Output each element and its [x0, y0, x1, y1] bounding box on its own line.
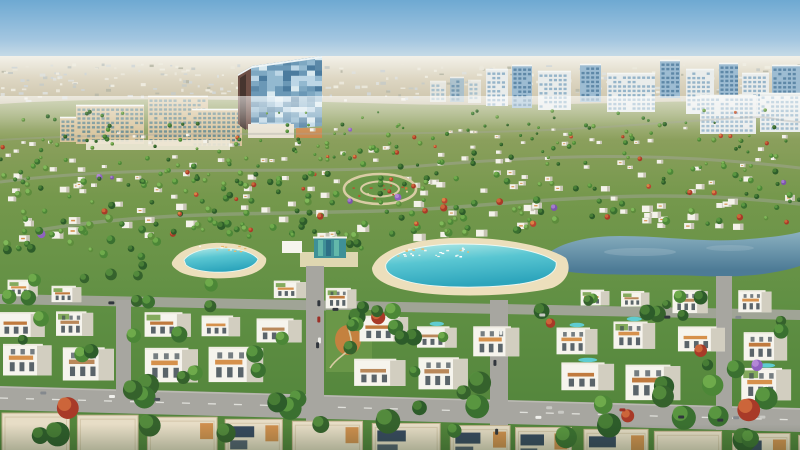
tower-window — [735, 75, 738, 77]
tree-highlight — [164, 170, 166, 172]
villa-shade — [454, 211, 457, 216]
speck — [51, 77, 54, 79]
tower-window — [559, 75, 562, 77]
tower-window — [564, 88, 567, 90]
tree-highlight — [776, 182, 778, 184]
tree-highlight — [573, 186, 577, 190]
tree-highlight — [513, 227, 517, 231]
speck — [386, 77, 388, 80]
speck — [4, 72, 8, 74]
awning — [360, 369, 386, 373]
tower-window — [549, 79, 552, 81]
tree-highlight — [527, 218, 530, 221]
speck — [121, 73, 125, 75]
tree-highlight — [141, 179, 144, 182]
window — [435, 376, 440, 385]
window — [69, 316, 72, 320]
glass-panel — [267, 71, 275, 77]
villa-shade — [143, 208, 146, 213]
window — [625, 300, 628, 304]
speck — [441, 66, 443, 69]
speck — [68, 80, 74, 82]
car — [539, 313, 545, 316]
tree-highlight — [86, 221, 91, 226]
tree-highlight — [333, 156, 335, 158]
tower-window — [763, 90, 766, 92]
tower-window — [502, 73, 505, 75]
villa-shade — [26, 235, 29, 241]
tower-window — [596, 68, 599, 70]
awning — [278, 288, 294, 290]
speck — [412, 249, 415, 251]
tower-window — [758, 77, 761, 79]
villa-shade — [759, 158, 761, 161]
tree-highlight — [673, 406, 688, 421]
speck — [632, 67, 637, 69]
villa-shade — [129, 222, 132, 228]
speck — [401, 187, 404, 188]
tree-highlight — [703, 375, 716, 388]
villa-shade — [643, 323, 655, 349]
tree-highlight — [176, 163, 179, 166]
villa-shade — [638, 141, 640, 144]
tower-window — [514, 77, 517, 79]
speck — [43, 92, 48, 94]
speck — [179, 78, 181, 81]
tower-window — [633, 81, 636, 83]
villa-shade — [189, 134, 190, 136]
glass-panel — [283, 71, 291, 77]
speck — [362, 86, 368, 89]
tower-window — [633, 85, 636, 87]
window — [222, 328, 226, 334]
tree-highlight — [414, 221, 417, 224]
villa-accent — [156, 189, 159, 190]
tree-highlight — [267, 179, 271, 183]
tree-highlight — [399, 215, 403, 219]
tree-highlight — [224, 220, 229, 225]
villa-accent — [635, 142, 637, 143]
speck — [171, 92, 176, 95]
tree-highlight — [764, 216, 767, 219]
tower-window — [492, 73, 495, 75]
tree-highlight — [471, 200, 475, 204]
speck — [160, 69, 165, 71]
tower-window — [730, 89, 733, 91]
lake-reflection — [706, 245, 754, 251]
villa-shade — [105, 165, 107, 168]
tower-window — [676, 72, 679, 74]
awning — [329, 296, 344, 299]
speck — [397, 255, 399, 256]
speck — [68, 66, 72, 68]
roof-garden — [276, 283, 286, 287]
tower-window — [788, 69, 791, 71]
speck — [353, 187, 355, 188]
window — [685, 341, 690, 348]
tower-window — [688, 81, 691, 83]
tree-highlight — [179, 138, 181, 140]
tree-highlight — [118, 161, 120, 163]
villa-roofline — [145, 312, 183, 314]
tree-highlight — [667, 169, 671, 173]
awning — [150, 322, 173, 325]
tree-highlight — [221, 186, 224, 189]
window — [80, 367, 85, 377]
tower-window — [470, 92, 473, 94]
tree-highlight — [372, 305, 379, 312]
tower-roofline — [607, 73, 655, 75]
tower-window — [666, 86, 669, 88]
villa-shade — [661, 160, 663, 164]
tree-highlight — [68, 195, 70, 197]
tree-highlight — [462, 230, 466, 234]
tower-window — [662, 64, 665, 66]
villa-roofline — [418, 357, 458, 359]
villa-roofline — [738, 290, 765, 292]
window — [207, 328, 211, 334]
window — [291, 291, 294, 296]
speck — [190, 93, 194, 95]
speck — [326, 87, 332, 89]
bottom-shadow — [0, 424, 800, 450]
pool — [578, 358, 597, 362]
villa-accent — [546, 178, 549, 179]
tree-highlight — [42, 138, 44, 140]
villa-shade — [442, 153, 444, 157]
tower-window — [652, 90, 655, 92]
tree-highlight — [178, 212, 181, 215]
car — [316, 342, 319, 348]
speck — [384, 189, 386, 190]
car — [735, 316, 741, 319]
speck — [43, 76, 47, 79]
tower-window — [528, 91, 531, 93]
window — [330, 300, 333, 306]
tree-highlight — [716, 218, 720, 222]
villa-shade — [66, 187, 69, 193]
tower-window — [523, 77, 526, 79]
tree-highlight — [757, 186, 760, 189]
speck — [402, 63, 404, 65]
villa-shade — [24, 141, 25, 144]
villa-accent — [556, 188, 559, 189]
window — [645, 370, 650, 376]
tower-window — [748, 85, 751, 87]
tower-roofline — [538, 71, 571, 73]
tree-highlight — [734, 147, 736, 149]
tower-window — [628, 85, 631, 87]
window — [691, 304, 695, 311]
tree-highlight — [302, 175, 306, 179]
tower-window — [735, 67, 738, 69]
tower-window — [586, 94, 589, 96]
tower-window — [774, 77, 777, 79]
villa-shade — [721, 223, 724, 228]
window — [70, 367, 75, 377]
car — [535, 416, 541, 419]
tree-highlight — [546, 162, 548, 164]
speck — [602, 72, 606, 75]
speck — [217, 75, 219, 78]
tree-highlight — [25, 182, 28, 185]
speck — [39, 84, 44, 86]
tree-highlight — [85, 139, 87, 141]
speck — [231, 82, 234, 84]
tree-highlight — [497, 198, 501, 202]
glass-panel — [275, 71, 283, 77]
speck — [477, 74, 482, 76]
window — [216, 367, 221, 377]
tree-highlight — [91, 146, 93, 148]
tree-highlight — [124, 380, 136, 392]
speck — [352, 71, 356, 74]
window — [68, 296, 71, 300]
villa-roofline — [417, 326, 450, 328]
tree-highlight — [728, 361, 739, 372]
tower-window — [586, 90, 589, 92]
window — [160, 327, 165, 334]
speck — [209, 90, 212, 92]
tree-highlight — [217, 222, 222, 227]
window — [767, 349, 771, 357]
speck — [50, 65, 53, 67]
tree-highlight — [21, 210, 25, 214]
window — [748, 387, 753, 396]
car — [332, 308, 338, 311]
window — [769, 373, 773, 379]
tree-highlight — [392, 151, 394, 153]
awning — [618, 332, 639, 336]
tower-window — [549, 75, 552, 77]
tower-window — [692, 77, 695, 79]
tower-window — [470, 84, 473, 86]
tree-highlight — [623, 140, 626, 143]
tree-highlight — [172, 327, 182, 337]
tree-highlight — [697, 138, 699, 140]
tower-window — [778, 82, 781, 84]
tower-window — [582, 94, 585, 96]
awning — [151, 361, 178, 366]
tree-highlight — [663, 300, 669, 306]
tower-window — [725, 89, 728, 91]
speck — [395, 77, 398, 80]
villa-shade — [615, 197, 617, 201]
villa-accent — [644, 220, 647, 221]
villa-shade — [453, 359, 468, 390]
speck — [53, 78, 56, 81]
tree-highlight — [695, 345, 703, 353]
tower-window — [456, 85, 459, 87]
villa-shade — [650, 213, 653, 218]
villa-roofline — [621, 291, 644, 293]
window — [562, 343, 566, 351]
villa-shade — [144, 135, 145, 138]
window — [278, 291, 281, 296]
awning — [365, 325, 389, 328]
tree-highlight — [333, 132, 335, 134]
tree-highlight — [424, 175, 428, 179]
tower-roofline — [486, 69, 508, 71]
tree-highlight — [21, 290, 31, 300]
tower-window — [436, 89, 439, 91]
tower-window — [452, 85, 455, 87]
tree-highlight — [460, 215, 465, 220]
window — [164, 353, 169, 359]
villa-roofline — [0, 312, 36, 314]
speck — [341, 70, 343, 73]
glass-panel — [251, 76, 259, 82]
tower-window — [432, 85, 435, 87]
tower-window — [528, 73, 531, 75]
villa-roofline — [56, 311, 86, 313]
speck — [228, 250, 230, 251]
glass-panel — [259, 86, 267, 92]
tree-highlight — [531, 137, 533, 139]
tower-window — [774, 82, 777, 84]
car — [546, 406, 552, 409]
awning — [60, 321, 79, 324]
villa-accent — [710, 182, 712, 183]
window — [361, 375, 366, 383]
tower-roofline — [580, 64, 601, 66]
tower-window — [544, 92, 547, 94]
window — [215, 328, 219, 334]
villa-accent — [659, 205, 662, 206]
tower-window — [778, 73, 781, 75]
villa-accent — [331, 234, 334, 235]
tower-window — [707, 86, 710, 88]
tower-window — [662, 90, 665, 92]
window — [571, 332, 575, 337]
villa-accent — [270, 160, 272, 161]
tree-highlight — [85, 344, 94, 353]
villa-shade — [691, 223, 694, 229]
tree-highlight — [42, 209, 45, 212]
tree-highlight — [43, 165, 47, 169]
glass-panel — [307, 86, 315, 92]
villa-shade — [740, 224, 743, 230]
tower-window — [559, 88, 562, 90]
tree-highlight — [205, 279, 213, 287]
tree-highlight — [518, 206, 521, 209]
tower-window — [559, 92, 562, 94]
tree-highlight — [268, 393, 280, 405]
villa-accent — [21, 238, 25, 239]
glass-panel — [275, 81, 283, 87]
tower-window — [688, 90, 691, 92]
tower-window — [697, 81, 700, 83]
window — [750, 349, 754, 357]
tower-window — [564, 83, 567, 85]
car — [108, 301, 114, 304]
tree-highlight — [541, 150, 543, 152]
tree-highlight — [157, 183, 161, 187]
window — [29, 362, 34, 371]
window — [423, 339, 427, 345]
tree-highlight — [292, 148, 295, 151]
tree-highlight — [81, 178, 85, 182]
tower-window — [642, 77, 645, 79]
tree-highlight — [411, 184, 414, 187]
tower-window — [582, 72, 585, 74]
tree-highlight — [471, 161, 474, 164]
tree-highlight — [59, 229, 62, 232]
tower-window — [637, 77, 640, 79]
tree-highlight — [747, 151, 749, 153]
speck — [230, 249, 232, 250]
tower-window — [697, 86, 700, 88]
tree-highlight — [206, 206, 210, 210]
window — [21, 349, 25, 354]
tower-window — [662, 72, 665, 74]
tower-roofline — [719, 63, 738, 65]
window — [62, 316, 65, 320]
villa-shade — [72, 287, 81, 302]
tower-window — [618, 90, 621, 92]
tree-highlight — [195, 222, 199, 226]
tree-highlight — [797, 198, 800, 201]
window — [579, 343, 583, 351]
tree-highlight — [35, 159, 39, 163]
speck — [195, 74, 201, 76]
villa-shade — [207, 140, 209, 143]
tree-highlight — [192, 179, 195, 182]
tower-window — [783, 69, 786, 71]
tree-highlight — [424, 180, 427, 183]
window — [481, 331, 485, 336]
villa-shade — [338, 179, 340, 183]
awning — [568, 373, 594, 377]
villa-shade — [648, 218, 651, 224]
speck — [388, 181, 390, 182]
tree-highlight — [621, 135, 623, 137]
tree-highlight — [39, 148, 42, 151]
tree-highlight — [395, 331, 404, 340]
villa-roofline — [257, 318, 294, 320]
tree-highlight — [785, 140, 787, 142]
car — [664, 316, 670, 319]
tower-window — [549, 83, 552, 85]
tree-highlight — [27, 244, 32, 249]
tower-window — [596, 76, 599, 78]
awning — [4, 322, 27, 325]
tree-highlight — [385, 210, 388, 213]
tree-highlight — [226, 158, 229, 161]
window — [20, 362, 25, 371]
car — [558, 411, 564, 414]
tower-body — [660, 61, 680, 98]
tree-highlight — [623, 151, 626, 154]
car — [717, 419, 723, 422]
villa-shade — [265, 158, 267, 162]
villa-shade — [605, 208, 608, 213]
pool-pavilion — [282, 241, 302, 253]
villa-shade — [34, 142, 36, 146]
villa-accent — [78, 184, 80, 185]
tower-window — [618, 85, 621, 87]
tree-highlight — [39, 156, 41, 158]
villa-shade — [539, 203, 542, 209]
tree-highlight — [131, 295, 138, 302]
tree-highlight — [348, 156, 351, 159]
car — [759, 416, 765, 419]
glass-panel — [291, 71, 299, 77]
window — [628, 337, 632, 345]
tree-highlight — [235, 197, 237, 199]
tower-window — [528, 69, 531, 71]
tower-window — [591, 90, 594, 92]
